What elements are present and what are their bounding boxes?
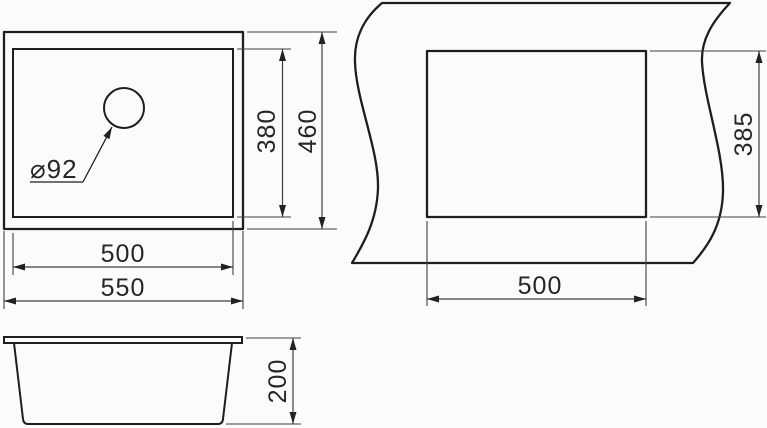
countertop-cutout-view: 385 500 (352, 3, 766, 306)
cutout-height-label: 385 (730, 112, 758, 157)
extension-lines (427, 51, 766, 306)
inner-height-label: 380 (253, 109, 281, 154)
drain-diameter-label: ⌀92 (30, 154, 78, 184)
sink-outer-rim-rect (4, 32, 243, 229)
cutout-width-label: 500 (518, 272, 563, 300)
outer-height-label: 460 (294, 109, 322, 154)
sink-side-view: 200 (4, 337, 301, 424)
inner-width-label: 500 (101, 240, 146, 268)
sink-body-profile (14, 343, 232, 424)
sink-top-view: ⌀92 380 460 500 550 (4, 32, 337, 309)
drain-leader-line (83, 127, 112, 182)
cutout-opening-rect (427, 51, 646, 217)
outer-width-label: 550 (101, 274, 146, 302)
side-height-label: 200 (264, 359, 292, 404)
sink-rim-profile (4, 337, 242, 343)
sink-dimension-drawing: ⌀92 380 460 500 550 385 500 (0, 0, 767, 428)
sink-bowl-rect (13, 49, 233, 217)
technical-drawing-page: ⌀92 380 460 500 550 385 500 (0, 0, 767, 428)
drain-hole-circle (104, 88, 144, 128)
countertop-panel-outline (352, 3, 730, 263)
